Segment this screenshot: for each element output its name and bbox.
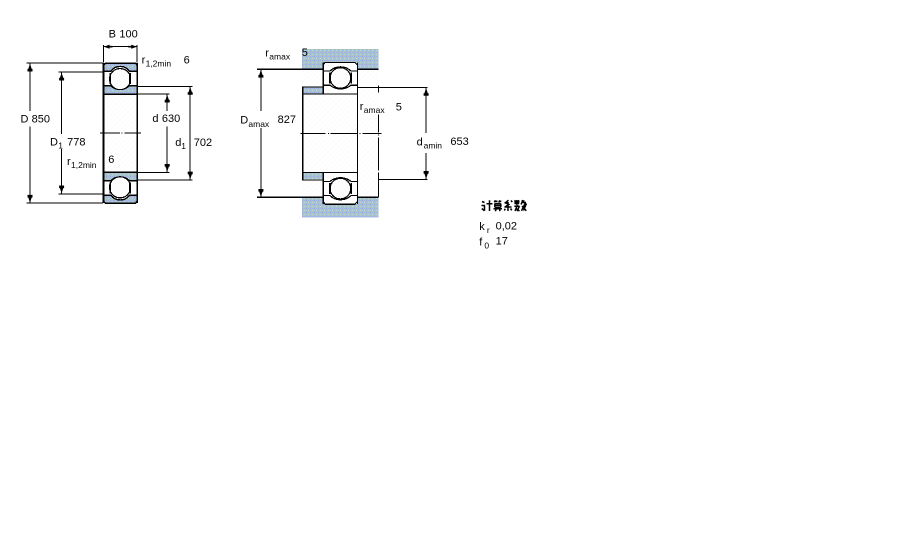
svg-text:D: D [21, 114, 29, 126]
svg-text:100: 100 [119, 29, 137, 41]
svg-text:D: D [240, 115, 248, 127]
svg-text:653: 653 [450, 136, 468, 148]
svg-text:850: 850 [32, 114, 50, 126]
svg-text:1: 1 [181, 141, 186, 151]
svg-text:17: 17 [496, 236, 508, 248]
svg-text:B: B [109, 29, 116, 41]
svg-text:1: 1 [58, 141, 63, 151]
svg-text:r: r [487, 225, 490, 235]
svg-text:amax: amax [269, 52, 291, 62]
svg-text:778: 778 [67, 137, 85, 149]
svg-text:827: 827 [278, 114, 296, 126]
svg-text:6: 6 [184, 54, 190, 66]
svg-text:D: D [50, 137, 58, 149]
svg-text:d: d [417, 137, 423, 149]
svg-text:k: k [479, 221, 485, 233]
svg-text:amax: amax [364, 105, 386, 115]
svg-text:5: 5 [302, 47, 308, 59]
svg-text:amax: amax [248, 119, 270, 129]
svg-text:amin: amin [424, 141, 443, 151]
svg-text:1,2min: 1,2min [146, 59, 172, 69]
svg-text:5: 5 [396, 101, 402, 113]
svg-text:6: 6 [108, 154, 114, 166]
svg-text:1,2min: 1,2min [71, 160, 97, 170]
svg-text:702: 702 [194, 137, 212, 149]
svg-text:630: 630 [162, 113, 180, 125]
svg-text:0: 0 [484, 240, 489, 250]
svg-text:0,02: 0,02 [496, 221, 517, 233]
svg-text:d: d [152, 113, 158, 125]
